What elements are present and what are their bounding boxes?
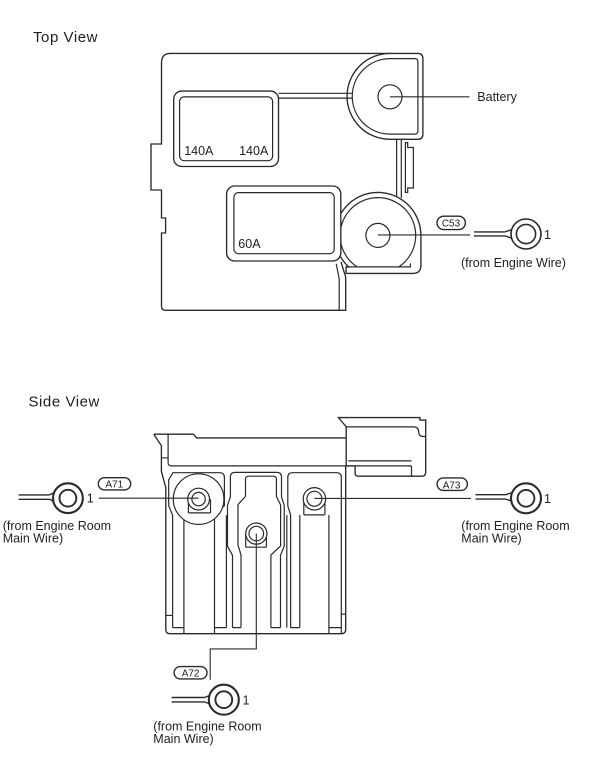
svg-text:140A: 140A: [184, 144, 214, 158]
svg-text:A73: A73: [443, 480, 461, 491]
svg-text:1: 1: [243, 693, 250, 707]
svg-text:C53: C53: [442, 219, 461, 230]
svg-text:1: 1: [544, 228, 551, 242]
svg-text:Main Wire): Main Wire): [3, 531, 63, 545]
svg-text:60A: 60A: [238, 237, 261, 251]
svg-text:Top View: Top View: [33, 29, 98, 46]
svg-text:A72: A72: [182, 669, 200, 680]
svg-text:Side View: Side View: [29, 393, 100, 410]
svg-text:Main Wire): Main Wire): [461, 531, 521, 545]
svg-text:1: 1: [544, 492, 551, 506]
svg-text:140A: 140A: [239, 144, 269, 158]
svg-text:Battery: Battery: [477, 90, 517, 104]
svg-text:1: 1: [87, 492, 94, 506]
svg-text:(from Engine Wire): (from Engine Wire): [461, 256, 566, 270]
svg-text:A71: A71: [105, 480, 123, 491]
svg-text:Main Wire): Main Wire): [153, 732, 213, 746]
